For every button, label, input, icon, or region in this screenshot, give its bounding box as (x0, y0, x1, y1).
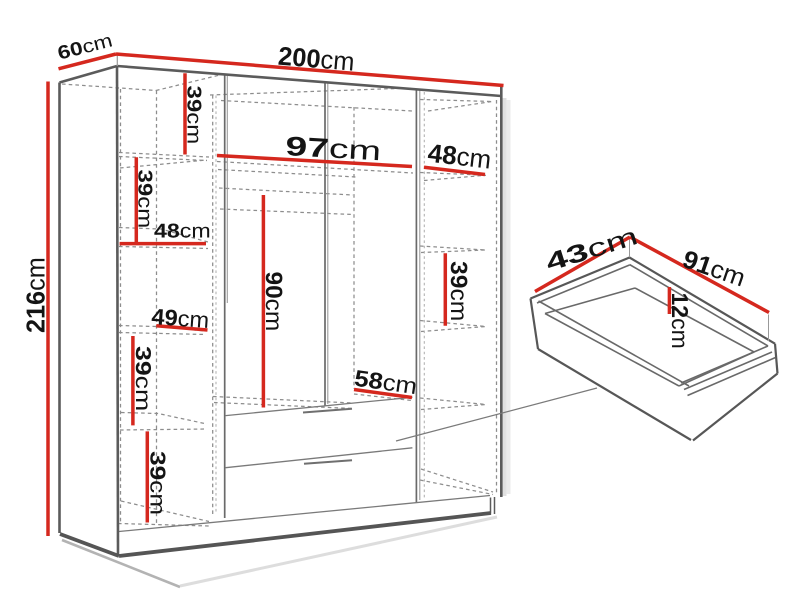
svg-text:48cm: 48cm (154, 221, 211, 243)
svg-text:39cm: 39cm (134, 170, 156, 229)
svg-text:39cm: 39cm (145, 451, 169, 515)
svg-text:39cm: 39cm (131, 346, 155, 411)
svg-text:97cm: 97cm (285, 131, 382, 166)
svg-text:39cm: 39cm (183, 86, 205, 145)
svg-text:90cm: 90cm (261, 272, 287, 332)
svg-text:12cm: 12cm (667, 293, 693, 349)
svg-text:216cm: 216cm (21, 257, 51, 333)
svg-text:200cm: 200cm (277, 41, 356, 77)
svg-text:39cm: 39cm (446, 261, 472, 321)
svg-text:49cm: 49cm (151, 304, 210, 333)
